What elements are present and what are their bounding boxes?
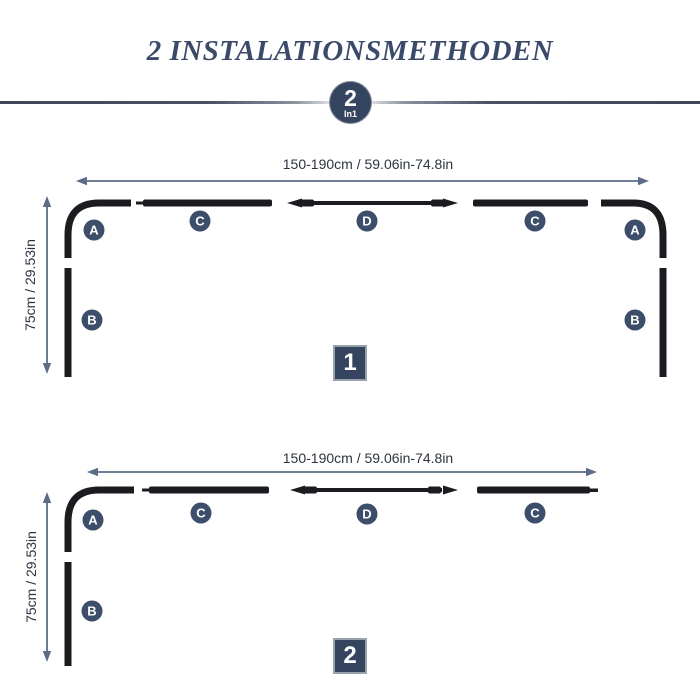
width-dimension-arrow <box>76 177 649 185</box>
method1-width-dimension-label: 150-190cm / 59.06in-74.8in <box>283 156 453 172</box>
page-title: 2 INSTALATIONSMETHODEN <box>0 35 700 68</box>
height-dimension-arrow <box>43 196 51 374</box>
method1-part-c-right-label: C <box>525 211 546 232</box>
method1-part-c-left-label: C <box>190 211 211 232</box>
method2-width-dimension-label: 150-190cm / 59.06in-74.8in <box>283 450 453 466</box>
rod-segment-c-right <box>473 200 588 207</box>
method1-part-a-left-label: A <box>84 220 105 241</box>
rod-segment-d <box>290 486 458 495</box>
method2-part-c-left-label: C <box>191 503 212 524</box>
method2-part-d-label: D <box>357 504 378 525</box>
method1-part-a-right-label: A <box>625 220 646 241</box>
method1-part-b-right-label: B <box>625 310 646 331</box>
height-dimension-arrow <box>43 492 51 662</box>
badge-subtext: In1 <box>329 110 372 119</box>
method1-height-dimension-label: 75cm / 29.53in <box>22 239 38 331</box>
method2-part-b-label: B <box>82 601 103 622</box>
rod-segment-d <box>287 199 458 208</box>
method1-part-b-left-label: B <box>82 310 103 331</box>
rod-segment-c-left <box>149 487 269 494</box>
method2-part-a-label: A <box>83 510 104 531</box>
rod-segment-c-right-pin <box>589 489 598 493</box>
badge-number: 2 <box>329 86 372 110</box>
infographic-page: 2 INSTALATIONSMETHODEN 2 In1 <box>0 0 700 700</box>
method2-height-dimension-label: 75cm / 29.53in <box>23 531 39 623</box>
method1-number-badge: 1 <box>333 345 367 381</box>
method2-part-c-right-label: C <box>525 503 546 524</box>
rod-segment-c-right <box>477 487 590 494</box>
two-in-one-badge: 2 In1 <box>329 81 372 124</box>
width-dimension-arrow <box>87 468 597 476</box>
rod-segment-c-left <box>143 200 272 207</box>
method1-part-d-label: D <box>357 211 378 232</box>
method2-number-badge: 2 <box>333 638 367 674</box>
